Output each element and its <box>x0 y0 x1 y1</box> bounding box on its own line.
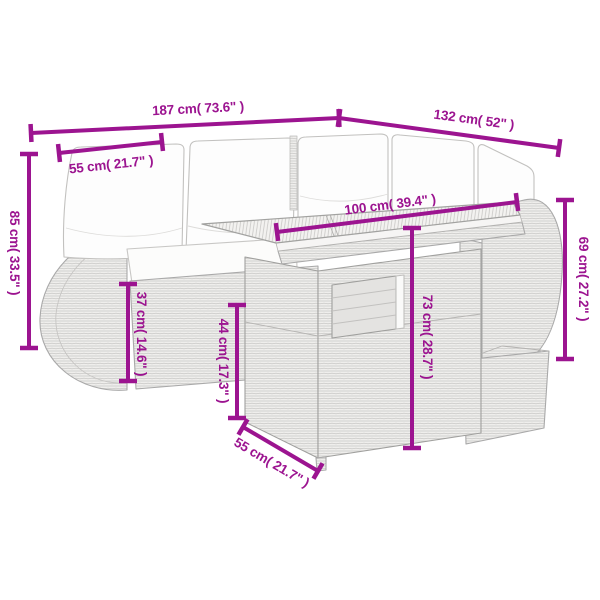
dimension-label: 37 cm( 14.6" ) <box>134 292 149 377</box>
dimension-end-cap <box>31 124 32 142</box>
table-base-left-face <box>245 257 318 458</box>
dimension-end-cap <box>338 109 340 127</box>
product-dimension-diagram: 187 cm( 73.6" )132 cm( 52" )55 cm( 21.7"… <box>0 0 600 600</box>
dimension-back-height: 85 cm( 33.5" ) <box>7 154 38 348</box>
furniture-illustration <box>40 134 562 471</box>
dimension-label: 132 cm( 52" ) <box>433 107 515 133</box>
dimension-label: 69 cm( 27.2" ) <box>576 237 591 322</box>
dimension-end-cap <box>516 193 518 211</box>
diagram-canvas: 187 cm( 73.6" )132 cm( 52" )55 cm( 21.7"… <box>0 0 600 600</box>
dimension-label: 44 cm( 17.3" ) <box>216 319 231 404</box>
dimension-end-cap <box>161 133 163 151</box>
dimension-label: 73 cm( 28.7" ) <box>420 295 435 380</box>
dimension-end-cap <box>558 139 560 157</box>
table-leg-post <box>396 275 404 329</box>
dimension-end-cap <box>276 223 278 241</box>
dimension-label: 85 cm( 33.5" ) <box>7 211 22 296</box>
corner-back-post <box>290 136 297 210</box>
dimension-back-width: 187 cm( 73.6" ) <box>31 99 340 142</box>
dimension-line <box>31 118 339 133</box>
dimension-label: 187 cm( 73.6" ) <box>152 99 245 118</box>
dimension-end-cap <box>58 144 60 162</box>
